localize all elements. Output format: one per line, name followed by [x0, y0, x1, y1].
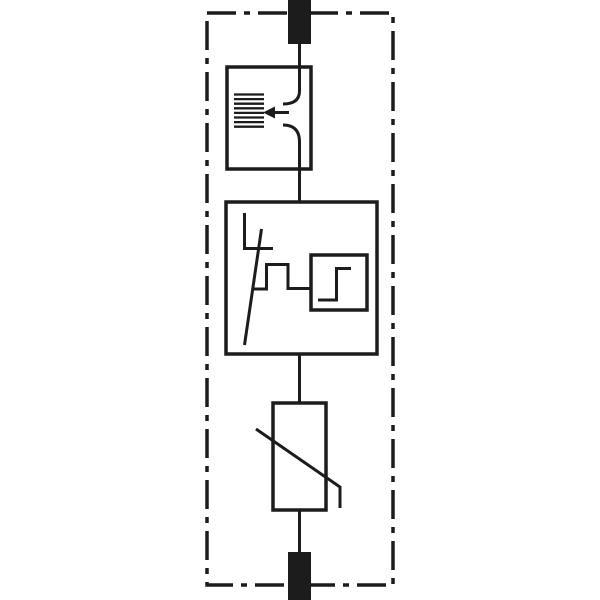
- spd-circuit-diagram: [0, 0, 600, 600]
- arc-splitter-plates: [234, 95, 264, 127]
- terminal-block-bottom: [288, 552, 311, 600]
- disconnector-blade: [245, 229, 262, 345]
- switching-characteristic-step: [318, 269, 351, 301]
- spark-gap-electrode-lower: [283, 125, 300, 203]
- linkage-step-line: [253, 265, 312, 290]
- arc-direction-arrow-head: [263, 107, 275, 119]
- terminal-block-top: [288, 0, 311, 44]
- disconnector-box: [226, 202, 377, 354]
- spark-gap-electrode-upper: [283, 44, 300, 104]
- status-indicator-box: [311, 255, 367, 310]
- circuit-diagram-canvas: [0, 0, 600, 600]
- varistor-body: [273, 403, 326, 510]
